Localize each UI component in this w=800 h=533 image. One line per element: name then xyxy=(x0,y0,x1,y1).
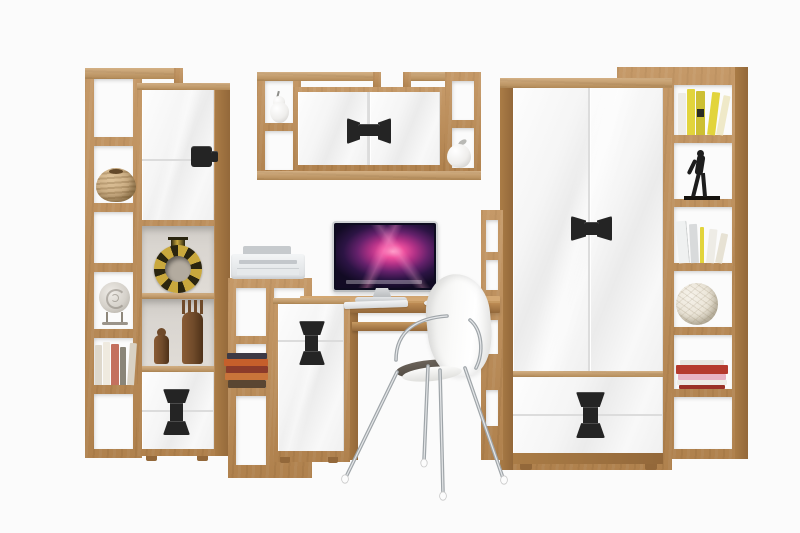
rattan-ball-decor xyxy=(676,283,718,325)
wardrobe-plinth xyxy=(513,453,663,464)
gold-ring-vessel-decor xyxy=(154,237,202,293)
printer xyxy=(231,246,305,279)
wall-shelf-bottom-bar xyxy=(257,171,481,180)
book-row-decor xyxy=(94,341,135,385)
wall-shelf-cell xyxy=(265,131,293,170)
ceramic-apple-decor xyxy=(446,140,472,169)
chair-chrome-frame xyxy=(270,296,520,511)
imac-dock xyxy=(346,280,422,284)
yellow-books-decor xyxy=(676,88,730,135)
wardrobe-foot xyxy=(645,464,657,470)
left-cabinet-foot xyxy=(146,456,157,461)
wall-shelf-handle-bar xyxy=(358,124,380,136)
wardrobe-top-edge xyxy=(500,78,672,88)
side-column-cell xyxy=(486,260,498,290)
right-bookcase-side-panel xyxy=(735,67,748,459)
wall-shelf-top-bar xyxy=(257,72,381,81)
chair-foot-glides xyxy=(342,459,508,500)
left-cabinet-top-edge xyxy=(137,83,230,90)
wardrobe-handle-bar xyxy=(584,222,599,235)
black-statuette-decor xyxy=(684,150,722,200)
book-stack-decor xyxy=(224,353,270,388)
leaning-binders-decor xyxy=(676,218,732,263)
printer-stand-cell xyxy=(236,396,266,465)
left-bookcase-cell xyxy=(94,394,133,449)
left-cabinet-drawer-handle xyxy=(170,403,183,421)
wardrobe-foot xyxy=(520,464,532,470)
spiral-shell-decor xyxy=(98,282,132,326)
tribal-figurines-decor xyxy=(152,300,210,366)
left-cabinet-door-handle xyxy=(191,146,212,167)
left-bookcase-cell xyxy=(94,79,133,137)
ceramic-pear-decor xyxy=(268,92,292,124)
woven-basket-decor xyxy=(96,168,136,202)
left-cabinet-door-handle xyxy=(211,151,218,162)
right-bookcase-cell xyxy=(674,397,732,449)
imac-screen xyxy=(336,225,434,288)
printer-stand-cell xyxy=(236,288,266,336)
side-column-cell xyxy=(486,220,498,252)
wall-shelf-cell xyxy=(452,81,474,120)
red-pink-books-decor xyxy=(676,360,730,389)
left-bookcase-top-bar xyxy=(85,68,183,79)
wardrobe-drawer-handle xyxy=(583,407,598,423)
left-bookcase-cell xyxy=(94,212,133,263)
left-cabinet-foot xyxy=(197,456,208,461)
imac-computer xyxy=(332,221,438,292)
furniture-set-photo xyxy=(0,0,800,533)
